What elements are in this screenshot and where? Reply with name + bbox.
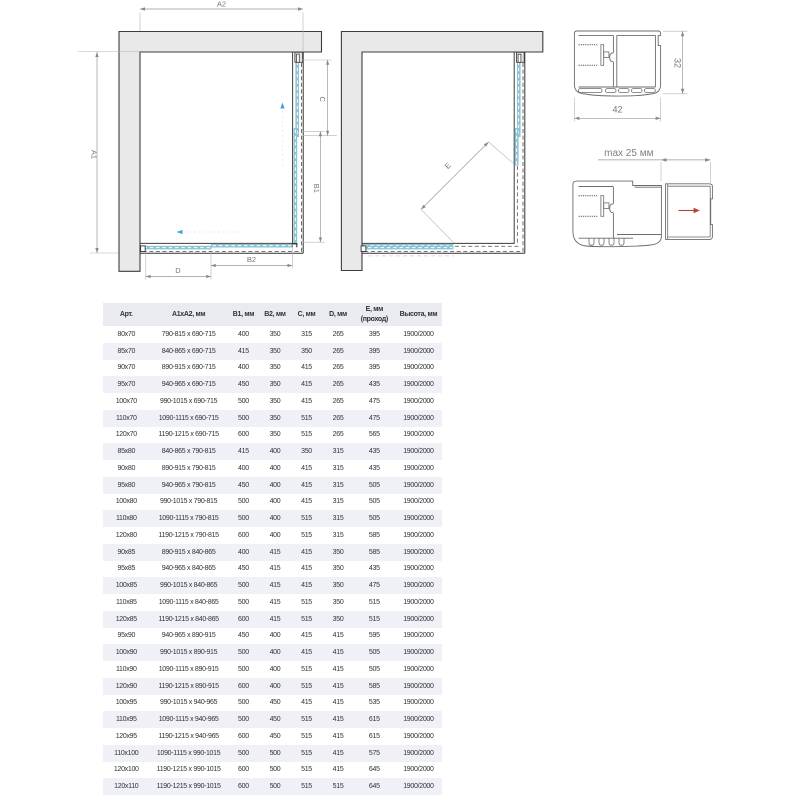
svg-text:C: C bbox=[318, 96, 327, 102]
svg-text:B1: B1 bbox=[312, 184, 321, 193]
svg-text:42: 42 bbox=[612, 105, 622, 115]
svg-text:E: E bbox=[443, 161, 453, 171]
svg-text:max 25 мм: max 25 мм bbox=[604, 148, 653, 159]
svg-text:A2: A2 bbox=[217, 0, 226, 9]
svg-text:D: D bbox=[175, 266, 181, 275]
svg-text:32: 32 bbox=[673, 58, 683, 68]
svg-text:B2: B2 bbox=[247, 255, 256, 264]
svg-text:A1: A1 bbox=[90, 150, 99, 159]
